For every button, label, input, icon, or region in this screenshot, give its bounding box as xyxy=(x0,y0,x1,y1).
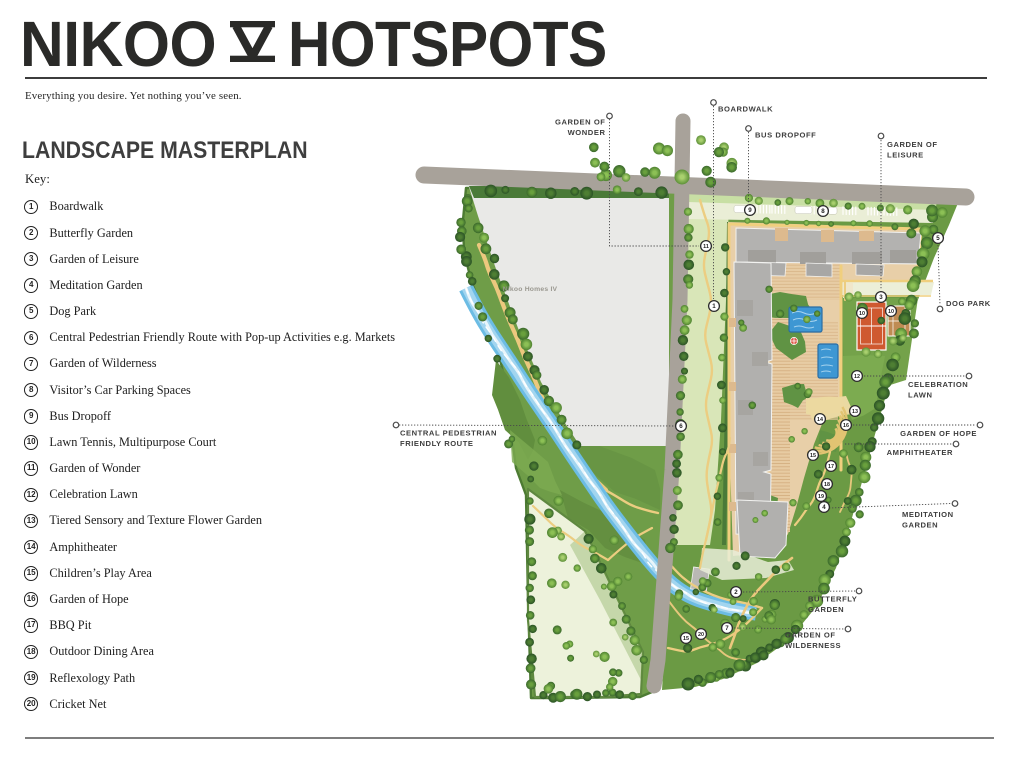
svg-text:15: 15 xyxy=(683,636,689,642)
svg-text:8: 8 xyxy=(821,208,825,215)
svg-text:GARDEN OFWONDER: GARDEN OFWONDER xyxy=(555,118,606,138)
svg-text:15: 15 xyxy=(810,453,816,459)
svg-text:18: 18 xyxy=(824,482,830,488)
svg-text:13: 13 xyxy=(852,409,858,415)
svg-text:9: 9 xyxy=(748,207,752,214)
svg-text:GARDEN OFLEISURE: GARDEN OFLEISURE xyxy=(887,140,938,160)
svg-text:GARDEN OFWILDERNESS: GARDEN OFWILDERNESS xyxy=(785,631,841,651)
svg-text:MEDITATIONGARDEN: MEDITATIONGARDEN xyxy=(902,510,954,530)
svg-text:11: 11 xyxy=(703,244,709,250)
svg-text:BUS DROPOFF: BUS DROPOFF xyxy=(755,131,816,140)
svg-text:BOARDWALK: BOARDWALK xyxy=(718,105,773,114)
svg-text:16: 16 xyxy=(843,423,849,429)
svg-text:12: 12 xyxy=(854,374,860,380)
svg-text:17: 17 xyxy=(828,464,834,470)
svg-text:6: 6 xyxy=(679,423,683,430)
svg-text:GARDEN OF HOPE: GARDEN OF HOPE xyxy=(900,429,977,438)
svg-text:7: 7 xyxy=(725,625,729,632)
svg-text:4: 4 xyxy=(822,504,826,511)
svg-text:19: 19 xyxy=(818,494,824,500)
svg-text:14: 14 xyxy=(817,417,823,423)
svg-text:DOG PARK: DOG PARK xyxy=(946,299,991,308)
svg-text:AMPHITHEATER: AMPHITHEATER xyxy=(887,448,953,457)
svg-text:2: 2 xyxy=(734,589,738,596)
svg-text:CENTRAL PEDESTRIANFRIENDLY ROU: CENTRAL PEDESTRIANFRIENDLY ROUTE xyxy=(400,429,497,449)
svg-text:5: 5 xyxy=(936,235,940,242)
svg-text:BUTTERFLYGARDEN: BUTTERFLYGARDEN xyxy=(808,595,857,615)
svg-text:Nikoo Homes IV: Nikoo Homes IV xyxy=(503,286,558,293)
svg-text:CELEBRATIONLAWN: CELEBRATIONLAWN xyxy=(908,380,968,400)
svg-text:20: 20 xyxy=(698,632,704,638)
svg-text:1: 1 xyxy=(712,303,716,310)
svg-text:3: 3 xyxy=(879,294,883,301)
svg-text:10: 10 xyxy=(888,309,894,315)
svg-text:10: 10 xyxy=(859,311,865,317)
